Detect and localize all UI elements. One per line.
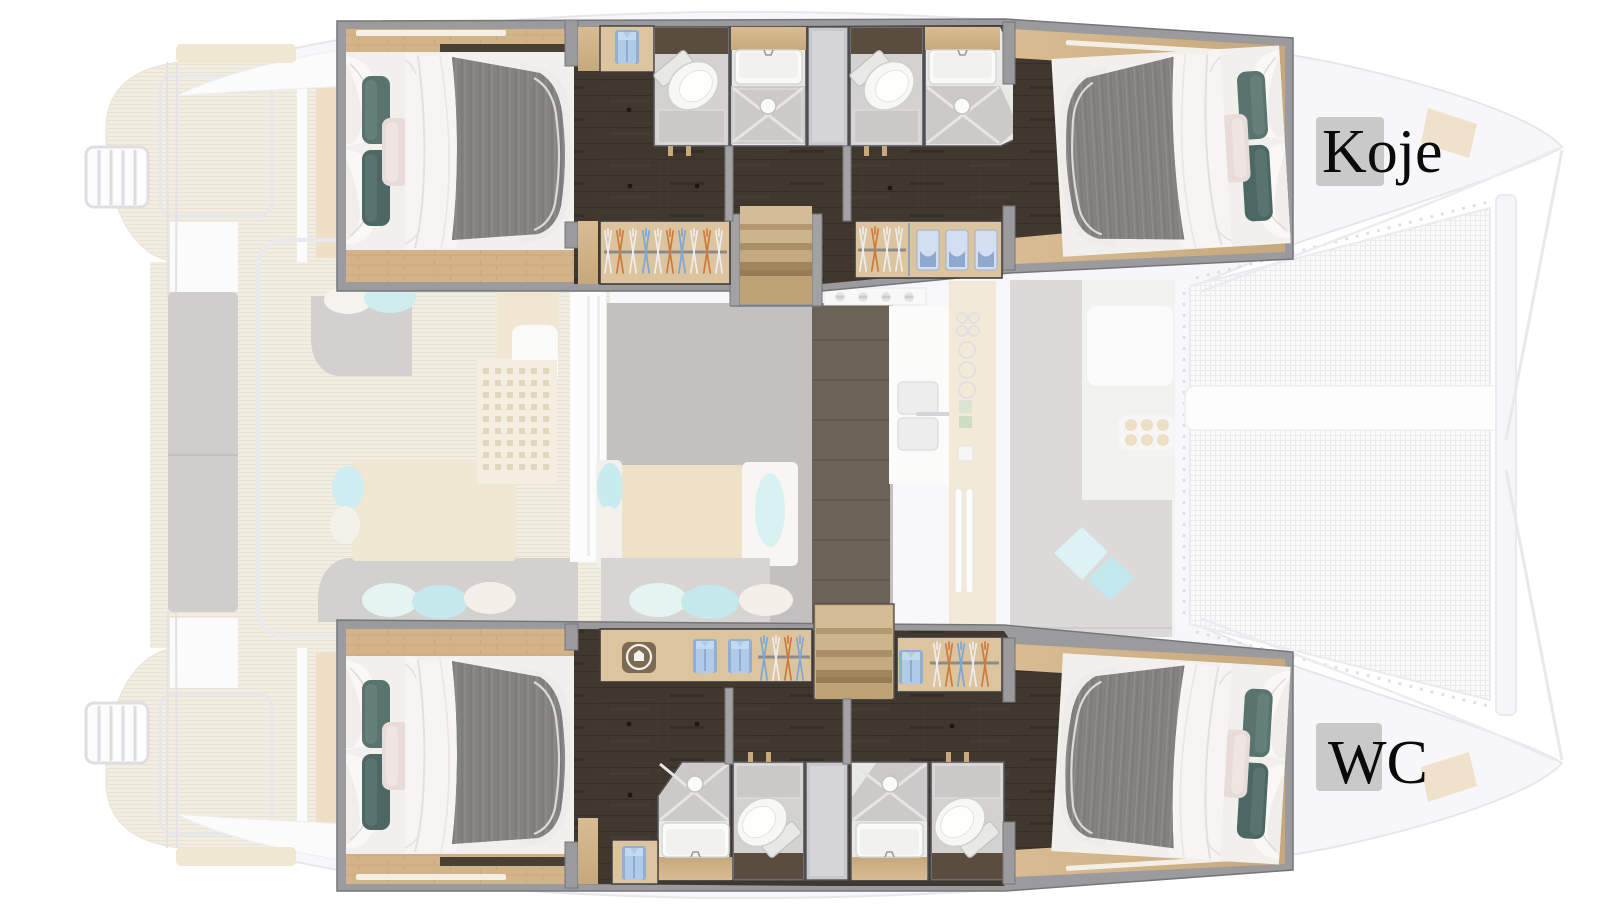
- svg-text:Koje: Koje: [1322, 118, 1443, 186]
- svg-text:WC: WC: [1328, 729, 1428, 797]
